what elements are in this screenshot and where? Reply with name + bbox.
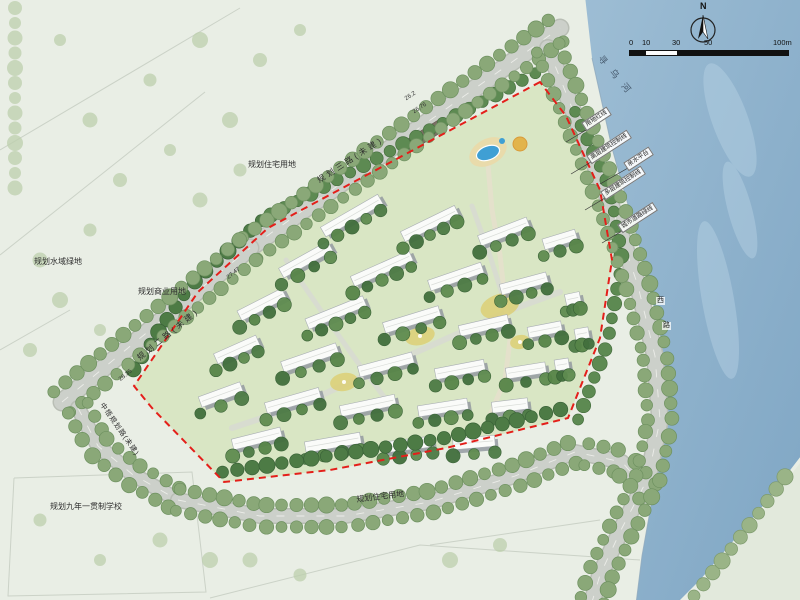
garden-pavilion [418,334,422,338]
riverside-road-char-1: 西 [656,297,665,305]
site-plan-image: 规划住宅用地 规划水域绿地 规划商业用地 规划九年一贯制学校 规划住宅用地 规划… [0,0,800,600]
small-pool [499,138,505,144]
parcel-label-residential-nw: 规划住宅用地 [248,161,296,169]
scale-tick: 0 [629,38,633,47]
scale-bar-segment [630,51,646,55]
scale-tick: 50 [704,38,712,47]
scale-bar-segment [709,51,788,55]
scale-bar-segment [646,51,677,55]
playground [513,137,527,151]
scale-bar-segment [677,51,709,55]
garden-pavilion [342,380,346,384]
scale-bar: 0 10 30 50 100m [629,38,797,60]
scale-tick: 30 [672,38,680,47]
riverside-road-char-2: 路 [662,322,671,330]
parcel-label-commercial: 规划商业用地 [138,288,186,296]
parcel-label-school: 规划九年一贯制学校 [50,503,122,511]
compass-north-label: N [700,2,707,11]
scale-tick: 100m [773,38,792,47]
parcel-label-water-green: 规划水域绿地 [34,258,82,266]
scale-bar-segments [629,50,789,56]
garden-pavilion [518,340,522,344]
scale-tick: 10 [642,38,650,47]
